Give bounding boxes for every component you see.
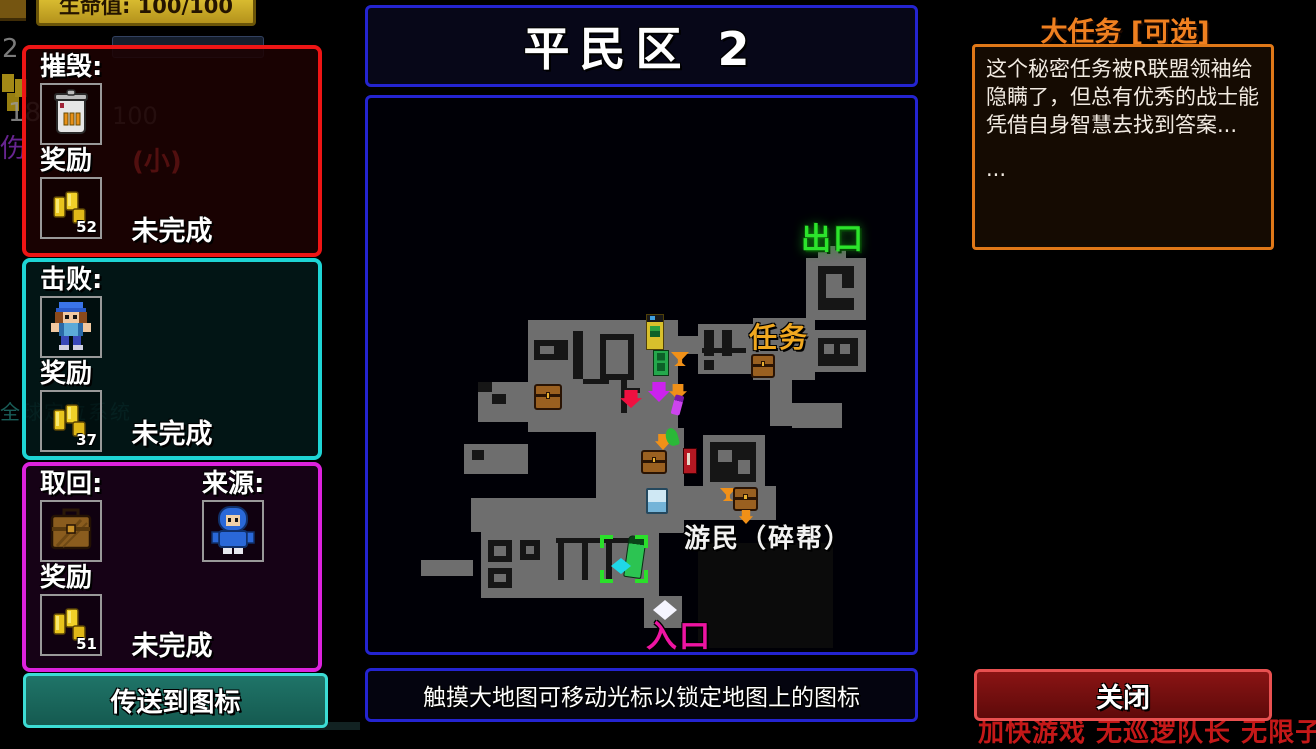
briefcase-icon xyxy=(47,508,95,554)
source-box xyxy=(202,500,264,562)
map-wall xyxy=(718,450,732,462)
map-wall xyxy=(492,394,506,404)
chest-icon xyxy=(641,450,667,474)
minimap[interactable]: 出口任务游民（碎帮）入口 xyxy=(365,95,918,655)
map-wall xyxy=(826,274,842,298)
machine-red-icon xyxy=(683,448,697,474)
map-room xyxy=(421,560,473,576)
map-wall xyxy=(494,546,506,556)
reward-label: 奖励 xyxy=(40,564,304,592)
trash-can-icon xyxy=(48,89,94,139)
teleport-to-icon-button[interactable]: 传送到图标 xyxy=(23,673,328,728)
map-wall xyxy=(840,344,850,354)
map-wall xyxy=(824,344,834,354)
side-quest-description-more: ... xyxy=(986,156,1260,184)
map-label: 出口 xyxy=(801,214,865,258)
map-wall xyxy=(738,460,750,474)
map-label: 游民（碎帮） xyxy=(684,518,852,555)
map-hint-box: 触摸大地图可移动光标以锁定地图上的图标 xyxy=(365,668,918,722)
map-wall xyxy=(540,346,554,354)
coins-icon xyxy=(2,74,14,92)
map-room xyxy=(792,403,842,428)
map-label: 任务 xyxy=(749,316,809,356)
map-wall xyxy=(702,348,746,353)
map-room xyxy=(770,376,792,426)
map-room xyxy=(698,543,833,648)
mission-target-box xyxy=(40,500,102,562)
map-wall xyxy=(842,288,854,298)
mission-panel-defeat: 击败: 奖励 xyxy=(22,258,322,460)
map-wall xyxy=(558,538,564,580)
hooded-character-icon xyxy=(210,505,256,557)
mission-action-label: 击败: xyxy=(40,266,304,294)
map-room xyxy=(676,336,700,354)
map-wall xyxy=(582,538,588,580)
mission-target-box xyxy=(40,83,102,145)
map-title: 平民区 2 xyxy=(523,13,759,79)
chest-icon xyxy=(534,384,562,410)
map-wall xyxy=(583,379,609,384)
map-wall xyxy=(472,450,484,460)
map-label: 入口 xyxy=(646,611,712,655)
mission-panel-destroy: (小) 摧毁: 奖励 52 未完成 xyxy=(22,45,322,257)
health-bar: 生命值: 100/100 xyxy=(36,0,256,26)
map-room xyxy=(471,498,636,532)
bg-level-text: 2 xyxy=(2,34,19,64)
side-quest-description: 这个秘密任务被R联盟领袖给隐瞒了，但总有优秀的战士能凭借自身智慧去找到答案... xyxy=(986,56,1260,140)
map-title-box: 平民区 2 xyxy=(365,5,918,87)
mission-status: 未完成 xyxy=(26,209,318,248)
locker-blue-icon xyxy=(646,488,668,514)
chest-icon xyxy=(751,354,775,378)
close-button[interactable]: 关闭 xyxy=(974,669,1272,721)
enemy-character-icon xyxy=(48,301,94,353)
map-wall xyxy=(494,574,506,582)
teleport-button-label: 传送到图标 xyxy=(110,682,240,719)
map-wall xyxy=(526,546,534,554)
map-wall xyxy=(478,382,492,392)
vending-machine-yellow-icon xyxy=(646,314,664,350)
machine-green-icon xyxy=(653,350,669,376)
mission-target-box xyxy=(40,296,102,358)
close-button-label: 关闭 xyxy=(1096,676,1150,715)
map-wall xyxy=(704,360,714,370)
corner-item-icon xyxy=(0,0,26,21)
source-label: 来源: xyxy=(202,470,264,498)
mission-action-label: 摧毁: xyxy=(40,53,304,81)
map-wall xyxy=(606,340,628,374)
map-room xyxy=(596,432,636,502)
target-brackets-green-icon xyxy=(600,535,648,583)
mission-status: 未完成 xyxy=(26,412,318,451)
side-quest-description-box: 这个秘密任务被R联盟领袖给隐瞒了，但总有优秀的战士能凭借自身智慧去找到答案...… xyxy=(972,44,1274,250)
reward-label: 奖励 xyxy=(40,360,304,388)
map-wall xyxy=(573,331,583,379)
mission-status: 未完成 xyxy=(26,624,318,663)
map-hint-text: 触摸大地图可移动光标以锁定地图上的图标 xyxy=(423,678,860,712)
chest-icon xyxy=(733,487,758,511)
health-label: 生命值: 100/100 xyxy=(59,0,233,20)
mission-panel-retrieve: 取回: 来源: 奖励 xyxy=(22,462,322,672)
bg-small-text: (小) xyxy=(132,141,182,178)
